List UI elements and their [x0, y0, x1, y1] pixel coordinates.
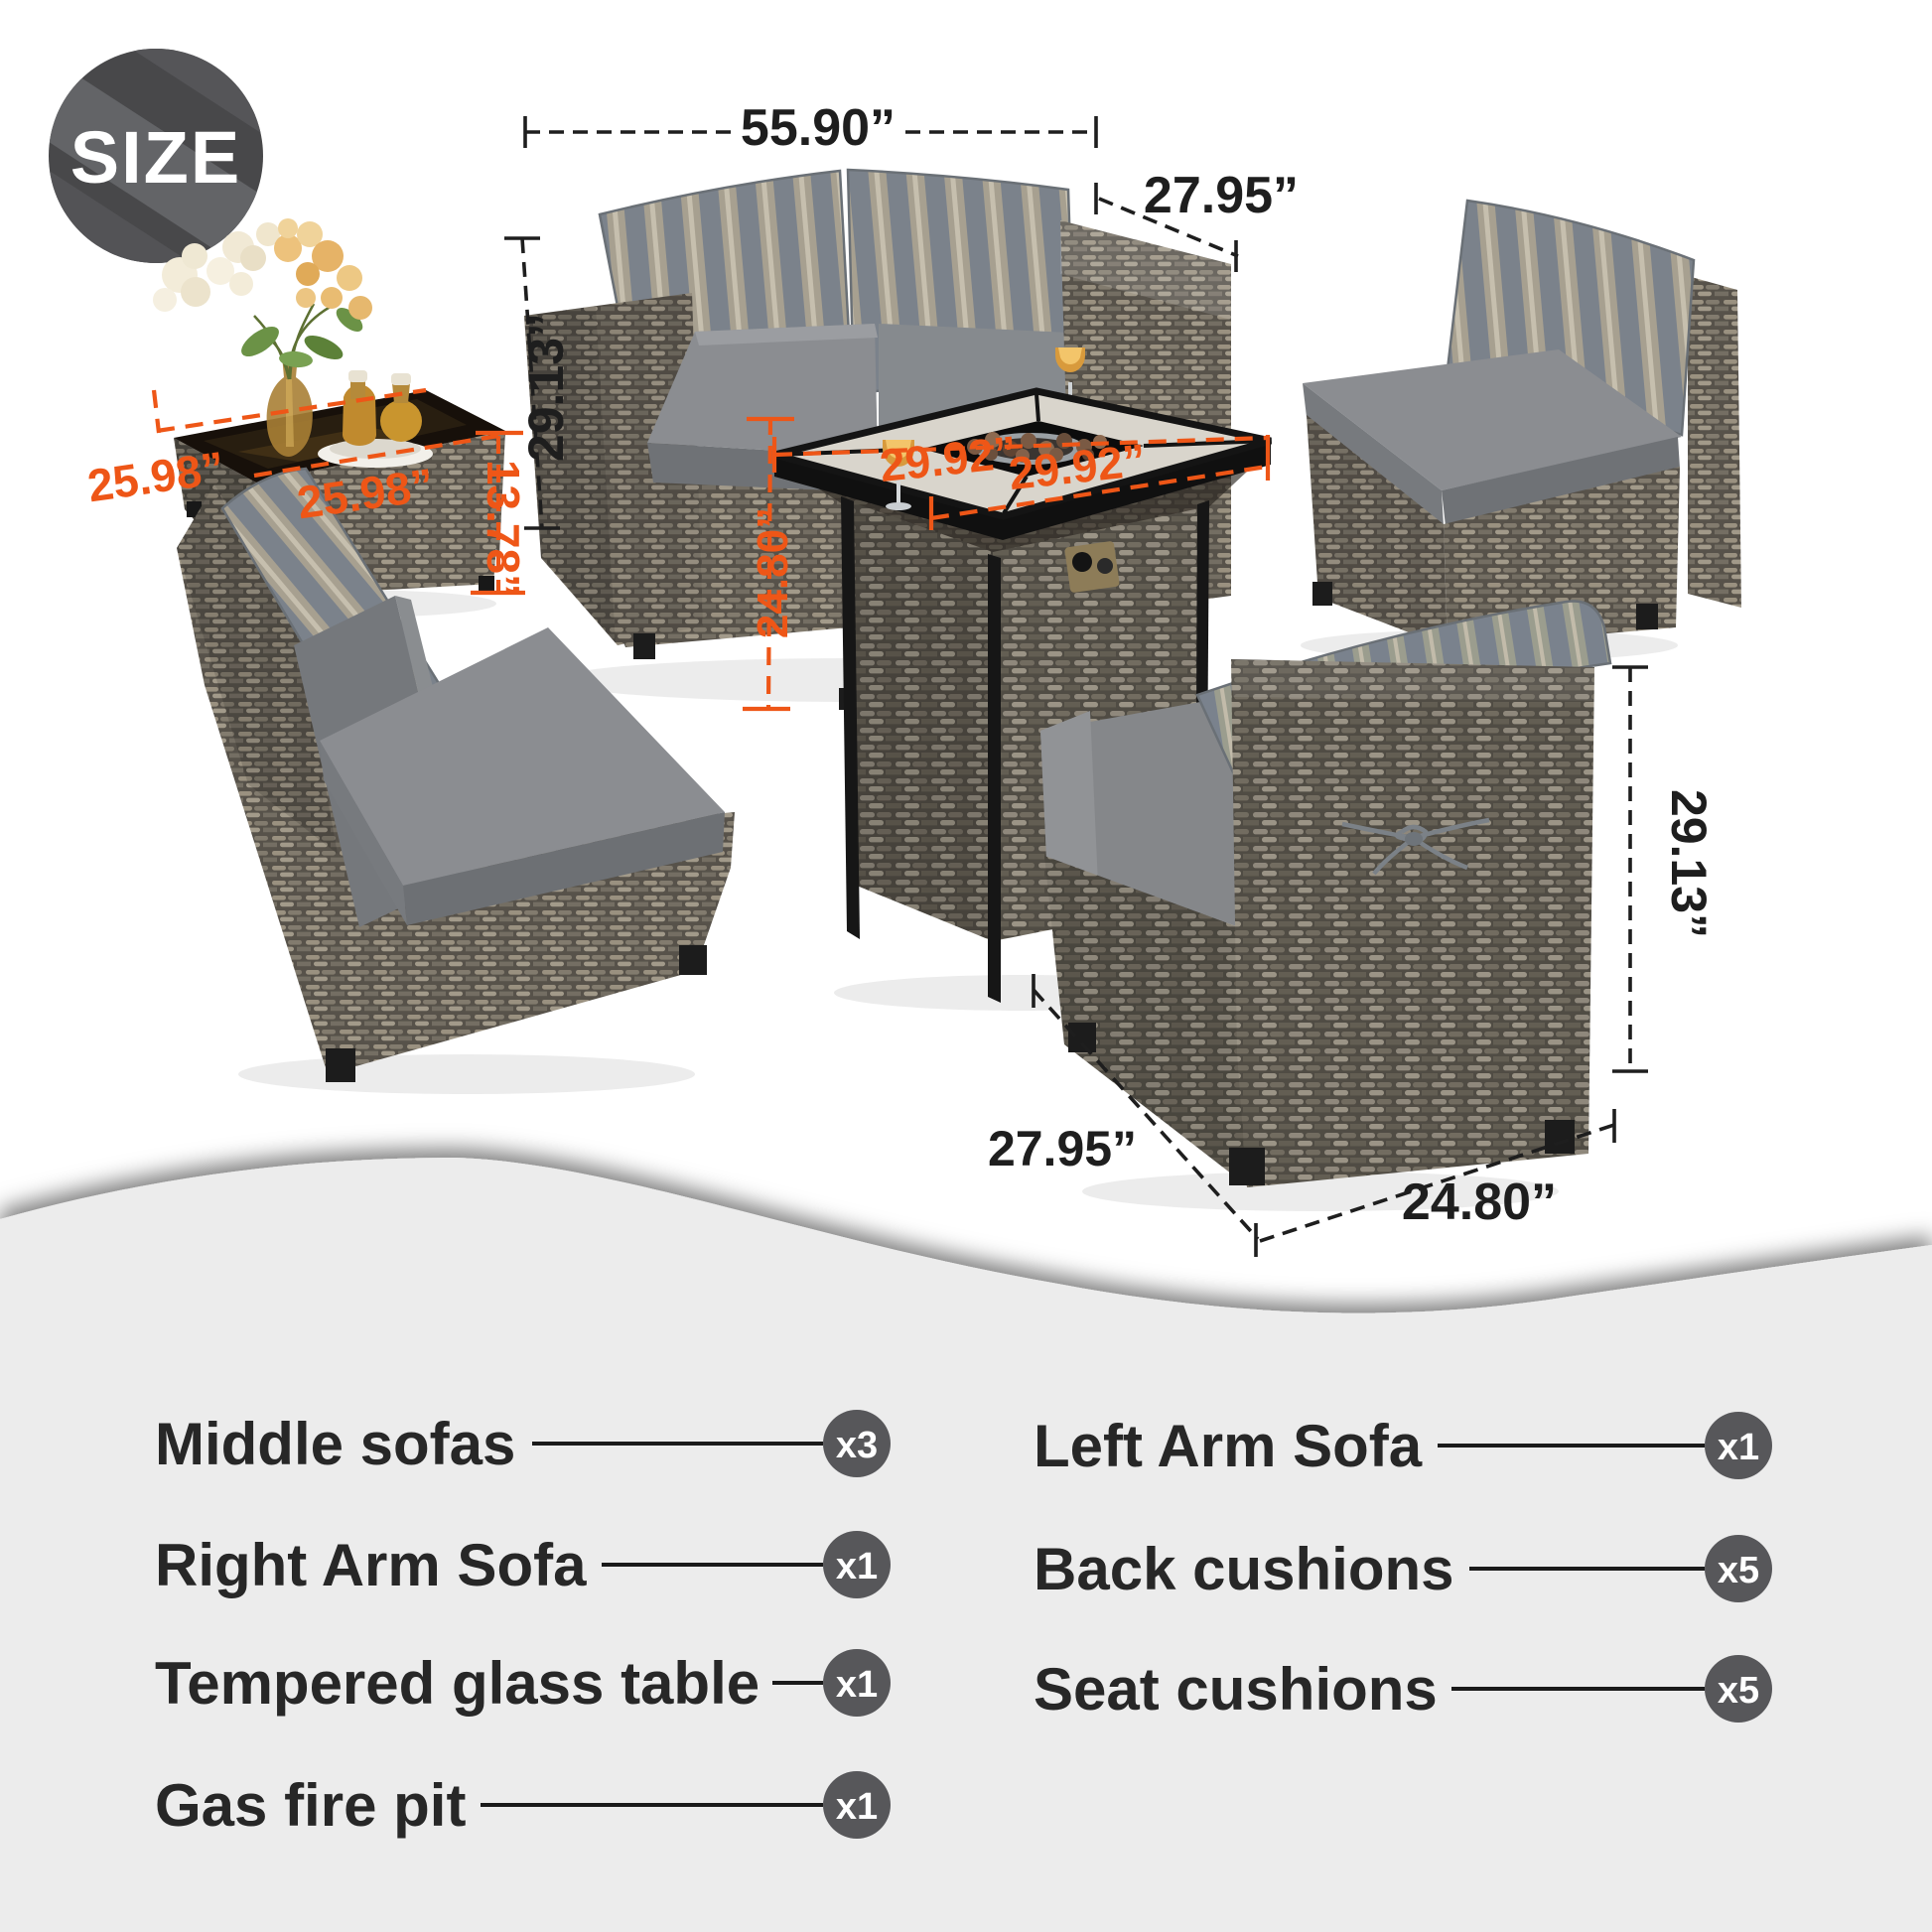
svg-text:27.95”: 27.95” — [988, 1121, 1137, 1176]
svg-text:x1: x1 — [1718, 1427, 1759, 1468]
svg-text:13.78”: 13.78” — [478, 460, 529, 597]
svg-text:x1: x1 — [836, 1546, 878, 1587]
svg-text:55.90”: 55.90” — [741, 99, 896, 157]
svg-text:27.95”: 27.95” — [1144, 167, 1299, 224]
svg-text:Seat cushions: Seat cushions — [1034, 1656, 1438, 1723]
svg-text:29.13”: 29.13” — [1661, 789, 1717, 938]
svg-text:24.80”: 24.80” — [1402, 1173, 1557, 1231]
svg-text:Back cushions: Back cushions — [1034, 1536, 1454, 1602]
svg-text:x3: x3 — [836, 1425, 878, 1466]
svg-text:SIZE: SIZE — [70, 116, 241, 199]
svg-text:Tempered glass table: Tempered glass table — [155, 1650, 759, 1717]
svg-text:24.80”: 24.80” — [749, 507, 797, 638]
svg-text:x5: x5 — [1718, 1550, 1759, 1591]
svg-text:Right Arm Sofa: Right Arm Sofa — [155, 1532, 587, 1598]
svg-text:29.13”: 29.13” — [518, 313, 574, 462]
svg-text:Left Arm Sofa: Left Arm Sofa — [1034, 1413, 1423, 1479]
svg-text:Gas fire pit: Gas fire pit — [155, 1772, 466, 1839]
svg-text:x1: x1 — [836, 1786, 878, 1828]
svg-text:Middle sofas: Middle sofas — [155, 1411, 515, 1477]
svg-text:x1: x1 — [836, 1664, 878, 1706]
svg-text:x5: x5 — [1718, 1670, 1759, 1712]
